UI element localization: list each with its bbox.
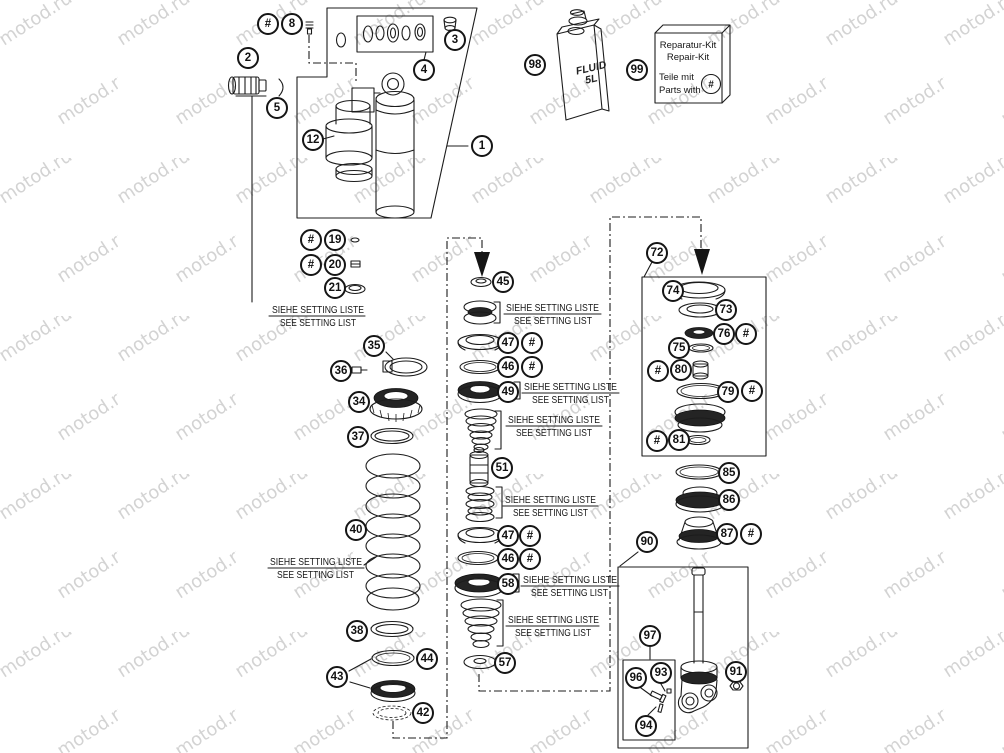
callout-58: 58: [497, 573, 519, 595]
part-shimstack-2-drawing: [466, 487, 494, 522]
callout-20: 20: [324, 254, 346, 276]
repair-kit-line4: Parts with: [659, 85, 701, 96]
part-87-drawing: [677, 517, 721, 549]
callout-97: 97: [639, 625, 661, 647]
callout-hash: #: [735, 323, 757, 345]
callout-90: 90: [636, 531, 658, 553]
part-47a-washer-drawing: [458, 335, 502, 351]
repair-kit-line1: Reparatur-Kit: [660, 40, 717, 51]
callout-hash: #: [521, 356, 543, 378]
part-57-washer-drawing: [464, 656, 496, 669]
callout-hash: #: [647, 360, 669, 382]
part-75-drawing: [689, 344, 713, 352]
part-47b-washer-drawing: [458, 528, 502, 544]
seal-kit-box: [337, 16, 434, 52]
repair-kit-hash: #: [708, 80, 714, 91]
part-spring-seat-drawing: [464, 301, 496, 324]
part-38-ring-drawing: [371, 622, 413, 637]
callout-hash: #: [740, 523, 762, 545]
setting-note-2: SIEHE SETTING LISTE SEE SETTING LIST: [494, 302, 601, 327]
part-49-bearing-drawing: [458, 382, 502, 403]
callout-51: 51: [491, 457, 513, 479]
callout-86: 86: [718, 489, 740, 511]
part-96-93-94-drawings: [641, 684, 671, 715]
setting-note-5: SIEHE SETTING LISTE SEE SETTING LIST: [496, 487, 598, 519]
fluid-label-line2: 5L: [584, 72, 599, 86]
setting-note-line1: SIEHE SETTING LISTE: [270, 557, 362, 568]
callout-38: 38: [346, 620, 368, 642]
setting-note-line2: SEE SETTING LIST: [516, 428, 592, 439]
setting-note-line1: SIEHE SETTING LISTE: [506, 303, 599, 314]
repair-kit-box: Reparatur-Kit Repair-Kit Teile mit Parts…: [655, 25, 730, 103]
callout-45: 45: [492, 271, 514, 293]
part-43-seal-drawing: [349, 659, 415, 702]
callout-46: 46: [497, 548, 519, 570]
setting-note-line2: SEE SETTING LIST: [513, 508, 588, 519]
callout-72: 72: [646, 242, 668, 264]
callout-47: 47: [497, 332, 519, 354]
setting-note-line1: SIEHE SETTING LISTE: [508, 415, 600, 426]
callout-hash: #: [300, 229, 322, 251]
callout-36: 36: [330, 360, 352, 382]
callout-34: 34: [348, 391, 370, 413]
part-2-adjuster-drawing: [229, 77, 267, 94]
part-42-ring-drawing: [373, 706, 411, 720]
part-76-drawing: [685, 328, 713, 339]
callout-93: 93: [650, 662, 672, 684]
setting-note-6: SIEHE SETTING LISTE SEE SETTING LIST: [513, 574, 619, 599]
repair-kit-line3: Teile mit: [659, 72, 694, 83]
callout-44: 44: [416, 648, 438, 670]
setting-note-line2: SEE SETTING LIST: [531, 588, 608, 599]
callout-35: 35: [363, 335, 385, 357]
seal-head-kit-box: [642, 262, 766, 456]
repair-kit-line2: Repair-Kit: [667, 52, 710, 63]
setting-note-line2: SEE SETTING LIST: [277, 570, 354, 581]
callout-8: 8: [281, 13, 303, 35]
part-45-drawing: [471, 278, 491, 287]
setting-note-1: SIEHE SETTING LISTE SEE SETTING LIST: [269, 305, 365, 329]
part-shimstack-3-drawing: [461, 599, 501, 648]
callout-1: 1: [471, 135, 493, 157]
callout-hash: #: [646, 430, 668, 452]
setting-note-line2: SEE SETTING LIST: [280, 318, 356, 329]
callout-81: 81: [668, 429, 690, 451]
callout-75: 75: [668, 337, 690, 359]
callout-96: 96: [625, 667, 647, 689]
callout-79: 79: [717, 381, 739, 403]
setting-note-line2: SEE SETTING LIST: [532, 395, 609, 406]
callout-98: 98: [524, 54, 546, 76]
part-91-shaft-drawing: [678, 568, 743, 713]
callout-85: 85: [718, 462, 740, 484]
part-80-drawing: [693, 361, 708, 379]
part-44-ring-drawing: [372, 651, 414, 666]
setting-note-line1: SIEHE SETTING LISTE: [272, 305, 364, 316]
shock-absorber-drawing: [326, 73, 414, 218]
part-34-adjuster-drawing: [370, 389, 422, 423]
part-19-20-21-drawings: [345, 238, 365, 294]
setting-note-line2: SEE SETTING LIST: [514, 316, 592, 327]
callout-4: 4: [413, 59, 435, 81]
part-5-clip-drawing: [279, 79, 283, 96]
callout-hash: #: [300, 254, 322, 276]
part-40-spring-drawing: [366, 454, 420, 610]
callout-19: 19: [324, 229, 346, 251]
setting-note-line1: SIEHE SETTING LISTE: [508, 615, 599, 626]
setting-note-line1: SIEHE SETTING LISTE: [524, 382, 617, 393]
setting-note-line1: SIEHE SETTING LISTE: [523, 575, 617, 586]
part-46a-oring-drawing: [460, 361, 500, 374]
setting-note-3: SIEHE SETTING LISTE SEE SETTING LIST: [514, 382, 619, 406]
callout-91: 91: [725, 661, 747, 683]
callout-hash: #: [257, 13, 279, 35]
part-shimstack-1-drawing: [465, 409, 497, 450]
callout-2: 2: [237, 47, 259, 69]
callout-12: 12: [302, 129, 324, 151]
setting-note-7: SIEHE SETTING LISTE SEE SETTING LIST: [497, 600, 599, 646]
setting-note-8: SIEHE SETTING LISTE SEE SETTING LIST: [268, 557, 376, 581]
callout-76: 76: [713, 323, 735, 345]
parts-diagram-page: motod.ru motod.ru: [0, 0, 1004, 753]
part-35-clamp-drawing: [383, 352, 427, 376]
callout-57: 57: [494, 652, 516, 674]
callout-49: 49: [497, 381, 519, 403]
part-58-piston-drawing: [455, 574, 503, 597]
callout-80: 80: [670, 359, 692, 381]
setting-note-line1: SIEHE SETTING LISTE: [505, 495, 596, 506]
callout-37: 37: [347, 426, 369, 448]
part-seal-head-drawing: [675, 404, 725, 432]
part-36-bolt-drawing: [352, 367, 367, 373]
callout-47: 47: [497, 525, 519, 547]
callout-87: 87: [716, 523, 738, 545]
callout-3: 3: [444, 29, 466, 51]
part-86-drawing: [676, 487, 724, 512]
part-37-oring-drawing: [371, 429, 413, 444]
callout-40: 40: [345, 519, 367, 541]
callout-21: 21: [324, 277, 346, 299]
part-8-bolt-drawing: [306, 22, 313, 34]
callout-74: 74: [662, 280, 684, 302]
fluid-bottle-drawing: FLUID 5L: [557, 10, 610, 120]
part-85-drawing: [676, 465, 722, 479]
callout-94: 94: [635, 715, 657, 737]
part-46b-oring-drawing: [458, 552, 498, 565]
callout-99: 99: [626, 59, 648, 81]
setting-note-4: SIEHE SETTING LISTE SEE SETTING LIST: [495, 411, 602, 449]
callout-hash: #: [519, 525, 541, 547]
part-51-drawing: [470, 448, 488, 487]
setting-note-line2: SEE SETTING LIST: [515, 628, 591, 639]
callout-73: 73: [715, 299, 737, 321]
callout-5: 5: [266, 97, 288, 119]
callout-43: 43: [326, 666, 348, 688]
callout-42: 42: [412, 702, 434, 724]
callout-hash: #: [521, 332, 543, 354]
callout-46: 46: [497, 356, 519, 378]
callout-hash: #: [519, 548, 541, 570]
callout-hash: #: [741, 380, 763, 402]
